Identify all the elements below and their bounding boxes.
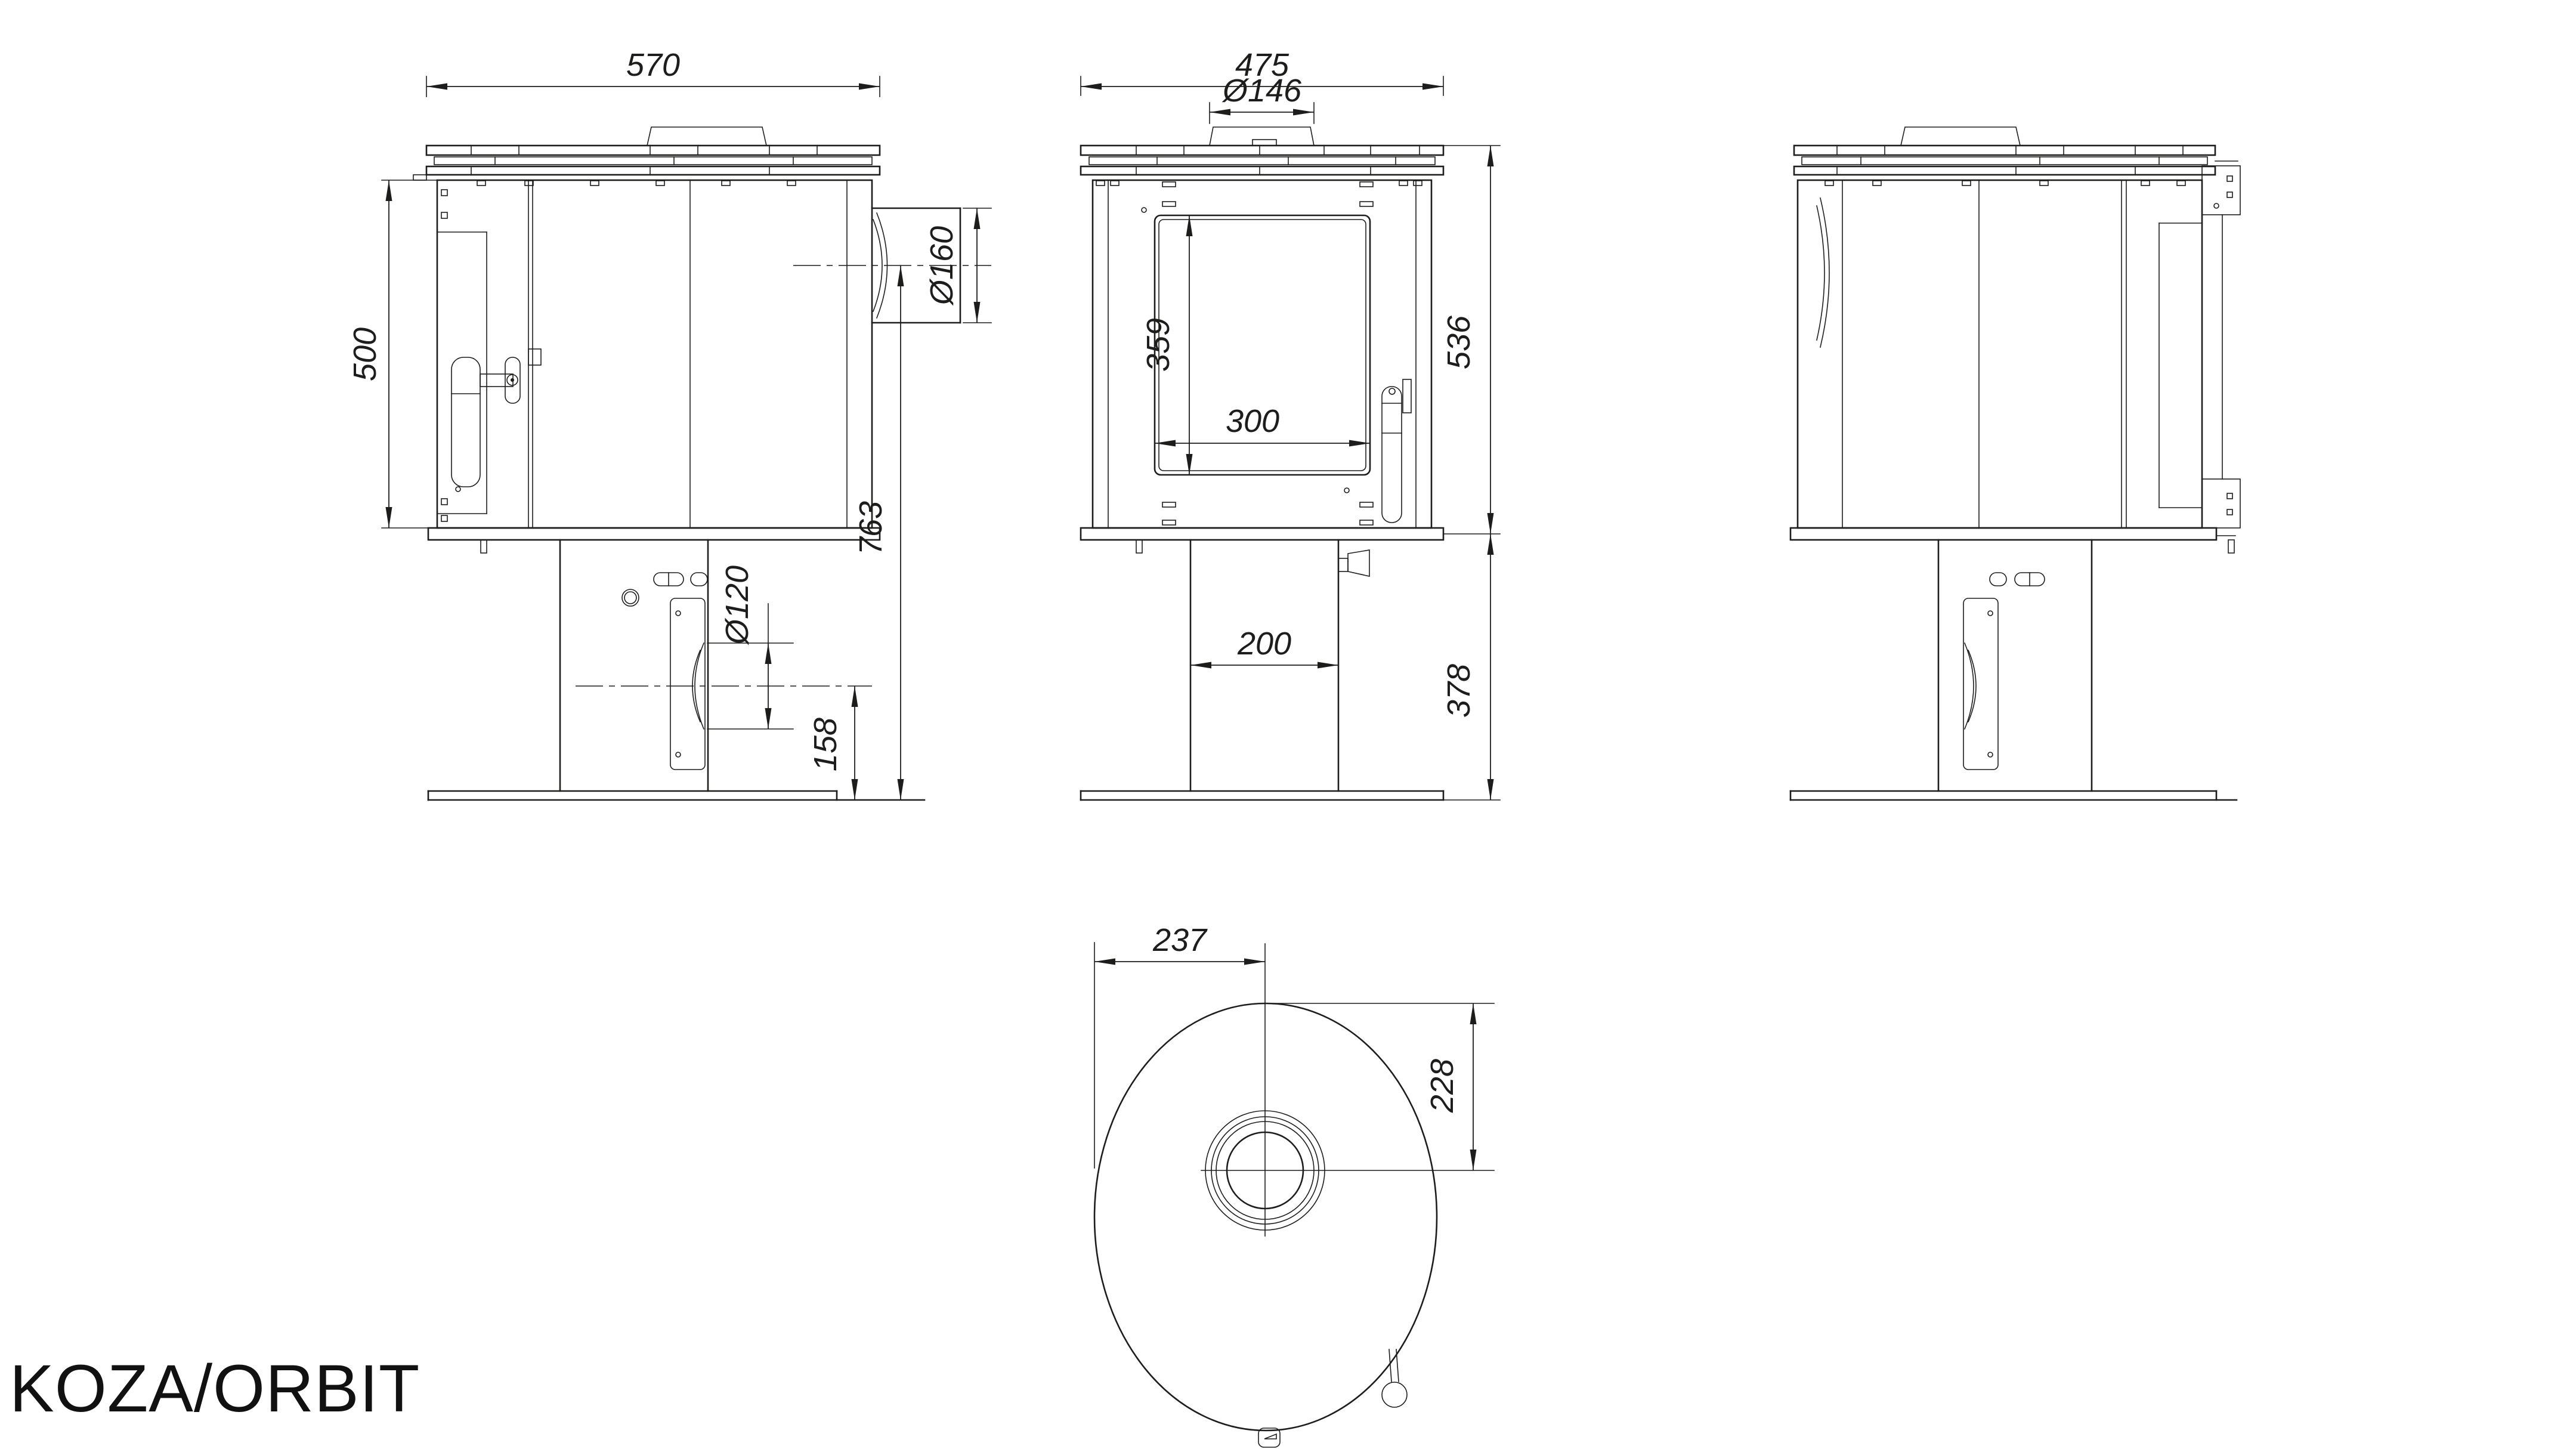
dim-label-237: 237 — [1152, 922, 1208, 958]
dim-label-359: 359 — [1140, 318, 1176, 372]
dim-label-763: 763 — [853, 501, 889, 555]
product-title: KOZA/ORBIT — [10, 1351, 420, 1426]
dim-label-158: 158 — [808, 718, 843, 771]
dim-label-570: 570 — [626, 47, 680, 83]
dim-label-o160: Ø160 — [924, 226, 960, 306]
dim-label-200: 200 — [1237, 626, 1291, 662]
dim-label-o146: Ø146 — [1221, 73, 1302, 109]
dim-label-o120: Ø120 — [719, 566, 755, 645]
dim-label-378: 378 — [1441, 664, 1477, 718]
stove-dimension-drawing: 570 500 Ø160 763 Ø120 158 — [0, 0, 2576, 1449]
canvas-background — [0, 0, 2576, 1449]
drawing-page: { "title": "KOZA/ORBIT", "drawing": { "t… — [0, 0, 2576, 1449]
dim-label-228: 228 — [1424, 1059, 1460, 1113]
dim-label-300: 300 — [1226, 403, 1279, 439]
dim-label-536: 536 — [1441, 315, 1477, 369]
dim-label-500: 500 — [347, 328, 383, 381]
